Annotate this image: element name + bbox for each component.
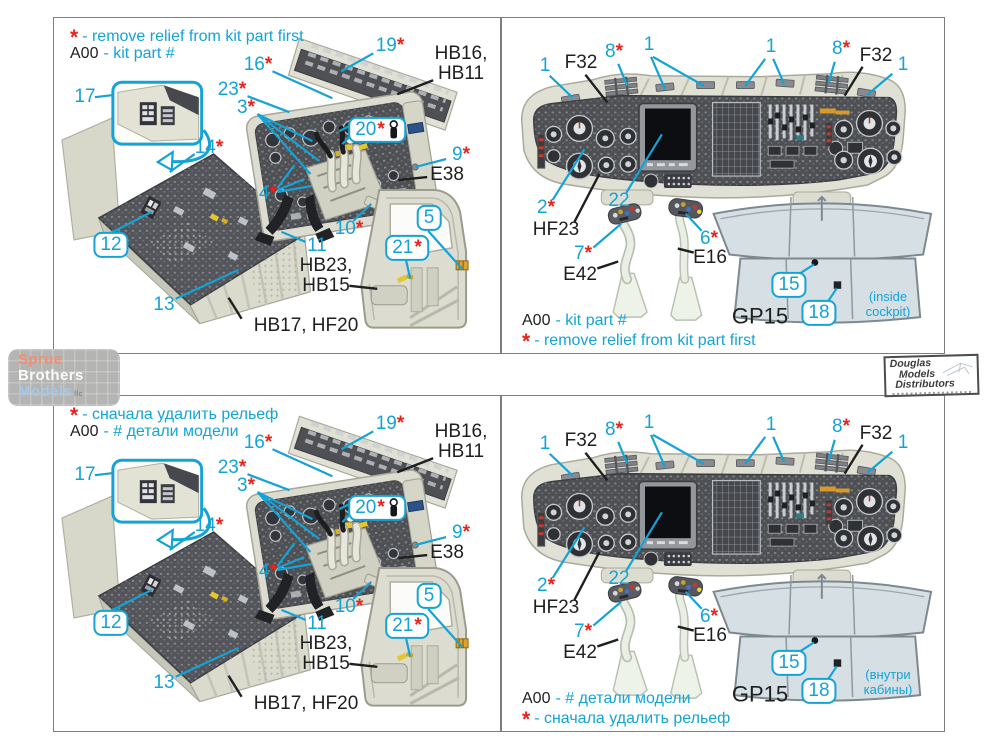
aircraft-sketch-icon xyxy=(941,358,976,381)
callout-e38: E38 xyxy=(430,165,464,185)
callout-hb16-hb11: HB16, HB11 xyxy=(435,422,488,462)
callout-8: 8* xyxy=(832,39,850,59)
callout-2: 2* xyxy=(537,198,555,218)
logo-line-2: Brothers xyxy=(18,368,120,384)
callout-16: 16* xyxy=(244,55,273,75)
callout-5: 5 xyxy=(417,583,442,609)
callout-22: 22 xyxy=(608,191,629,211)
callout-17: 17 xyxy=(74,87,95,107)
red-asterisk: * xyxy=(397,413,404,434)
note-remove-relief: *- remove relief from kit part first xyxy=(522,329,756,350)
red-asterisk: * xyxy=(377,119,384,140)
callout-19: 19* xyxy=(376,36,405,56)
note-kit-part: A00- kit part # xyxy=(522,311,627,330)
callout-hb23-hb15: HB23, HB15 xyxy=(300,256,353,296)
callout-1: 1 xyxy=(766,37,777,57)
callout-21: 21* xyxy=(385,235,429,261)
callout-8: 8* xyxy=(832,417,850,437)
callout-inside-cockpit: (inside cockpit) xyxy=(866,290,911,320)
callout-f32: F32 xyxy=(565,53,598,73)
callout-6: 6* xyxy=(700,229,718,249)
callout-13: 13 xyxy=(153,673,174,693)
quadrant-bottom-right-russian: A00- # детали модели *- сначала удалить … xyxy=(502,396,944,731)
red-asterisk: * xyxy=(711,228,718,249)
red-asterisk: * xyxy=(414,237,421,258)
callout-1: 1 xyxy=(644,413,655,433)
callout-22: 22 xyxy=(608,569,629,589)
callout-hf23: HF23 xyxy=(533,220,579,240)
red-asterisk: * xyxy=(265,54,272,75)
red-asterisk: * xyxy=(216,515,223,536)
callout-1: 1 xyxy=(644,35,655,55)
stamp-fine-print xyxy=(892,390,973,396)
red-asterisk: * xyxy=(270,561,277,582)
callout-hb17-hf20: HB17, HF20 xyxy=(254,694,359,714)
callout-1: 1 xyxy=(766,415,777,435)
callout-3: 3* xyxy=(237,476,255,496)
callout-9: 9* xyxy=(452,523,470,543)
callout-7: 7* xyxy=(574,622,592,642)
callout-3: 3* xyxy=(237,98,255,118)
note-remove-relief-ru: *- сначала удалить рельеф xyxy=(522,707,730,728)
red-asterisk: * xyxy=(616,41,623,62)
callout-6: 6* xyxy=(700,607,718,627)
red-asterisk: * xyxy=(216,137,223,158)
callout-5: 5 xyxy=(417,205,442,231)
callout-e42: E42 xyxy=(563,265,597,285)
callout-14: 14* xyxy=(195,516,224,536)
callout-18: 18 xyxy=(801,300,836,326)
quadrant-top-right-english: A00- kit part # *- remove relief from ki… xyxy=(502,18,944,353)
callout-f32: F32 xyxy=(860,424,893,444)
callout-e42: E42 xyxy=(563,643,597,663)
callout-1: 1 xyxy=(540,56,551,76)
quadrant-top-left-english: *- remove relief from kit part first A00… xyxy=(54,18,500,353)
lever-icon xyxy=(388,498,399,517)
red-asterisk: * xyxy=(711,606,718,627)
callout-gp15: GP15 xyxy=(732,304,788,327)
red-asterisk: * xyxy=(522,708,530,731)
callout-13: 13 xyxy=(153,295,174,315)
logo-line-1: Sprue xyxy=(18,352,120,368)
red-asterisk: * xyxy=(414,615,421,636)
red-asterisk: * xyxy=(270,183,277,204)
lever-icon xyxy=(388,120,399,139)
callout-: (внутри кабины) xyxy=(864,668,913,698)
distributor-stamp: Douglas Models Distributors xyxy=(883,354,979,397)
callout-14: 14* xyxy=(195,138,224,158)
callout-1: 1 xyxy=(898,433,909,453)
red-asterisk: * xyxy=(248,97,255,118)
callout-1: 1 xyxy=(898,55,909,75)
red-asterisk: * xyxy=(616,419,623,440)
callout-20: 20* xyxy=(348,495,406,521)
callout-11: 11 xyxy=(307,614,327,634)
callout-16: 16* xyxy=(244,433,273,453)
callout-4: 4* xyxy=(259,184,277,204)
red-asterisk: * xyxy=(377,497,384,518)
callout-f32: F32 xyxy=(860,46,893,66)
red-asterisk: * xyxy=(548,575,555,596)
callout-18: 18 xyxy=(801,678,836,704)
callout-e16: E16 xyxy=(693,626,727,646)
note-remove-relief: *- remove relief from kit part first xyxy=(70,25,304,46)
callout-19: 19* xyxy=(376,414,405,434)
red-asterisk: * xyxy=(548,197,555,218)
red-asterisk: * xyxy=(585,621,592,642)
callout-hb23-hb15: HB23, HB15 xyxy=(300,634,353,674)
note-kit-part-ru: A00- # детали модели xyxy=(70,422,239,441)
note-kit-part: A00- kit part # xyxy=(70,44,175,63)
callout-9: 9* xyxy=(452,145,470,165)
callout-8: 8* xyxy=(605,42,623,62)
callout-15: 15 xyxy=(771,272,806,298)
callout-7: 7* xyxy=(574,244,592,264)
callout-e16: E16 xyxy=(693,248,727,268)
callout-1: 1 xyxy=(540,434,551,454)
logo-line-3: Models xyxy=(18,384,72,400)
callout-4: 4* xyxy=(259,562,277,582)
callout-12: 12 xyxy=(93,610,128,636)
callout-11: 11 xyxy=(307,236,327,256)
callout-17: 17 xyxy=(74,465,95,485)
callout-10: 10* xyxy=(335,219,364,239)
callout-e38: E38 xyxy=(430,543,464,563)
red-asterisk: * xyxy=(843,38,850,59)
red-asterisk: * xyxy=(843,416,850,437)
instruction-sheet: *- remove relief from kit part first A00… xyxy=(0,0,1000,750)
callout-gp15: GP15 xyxy=(732,682,788,705)
callout-20: 20* xyxy=(348,117,406,143)
sprue-brothers-logo: Sprue Brothers Modelsllc xyxy=(8,349,120,406)
top-instruction-panel: *- remove relief from kit part first A00… xyxy=(53,17,945,354)
callout-f32: F32 xyxy=(565,431,598,451)
red-asterisk: * xyxy=(585,243,592,264)
red-asterisk: * xyxy=(248,475,255,496)
red-asterisk: * xyxy=(522,330,530,353)
callout-hb16-hb11: HB16, HB11 xyxy=(435,44,488,84)
callout-8: 8* xyxy=(605,420,623,440)
red-asterisk: * xyxy=(356,596,363,617)
callout-21: 21* xyxy=(385,613,429,639)
red-asterisk: * xyxy=(463,522,470,543)
note-kit-part-ru: A00- # детали модели xyxy=(522,689,691,708)
callout-12: 12 xyxy=(93,232,128,258)
callout-hf23: HF23 xyxy=(533,598,579,618)
callout-hb17-hf20: HB17, HF20 xyxy=(254,316,359,336)
callout-15: 15 xyxy=(771,650,806,676)
callout-10: 10* xyxy=(335,597,364,617)
note-remove-relief-ru: *- сначала удалить рельеф xyxy=(70,403,278,424)
bottom-instruction-panel: *- сначала удалить рельеф A00- # детали … xyxy=(53,395,945,732)
quadrant-bottom-left-russian: *- сначала удалить рельеф A00- # детали … xyxy=(54,396,500,731)
logo-suffix: llc xyxy=(74,391,83,398)
callout-2: 2* xyxy=(537,576,555,596)
red-asterisk: * xyxy=(397,35,404,56)
red-asterisk: * xyxy=(356,218,363,239)
red-asterisk: * xyxy=(265,432,272,453)
red-asterisk: * xyxy=(463,144,470,165)
